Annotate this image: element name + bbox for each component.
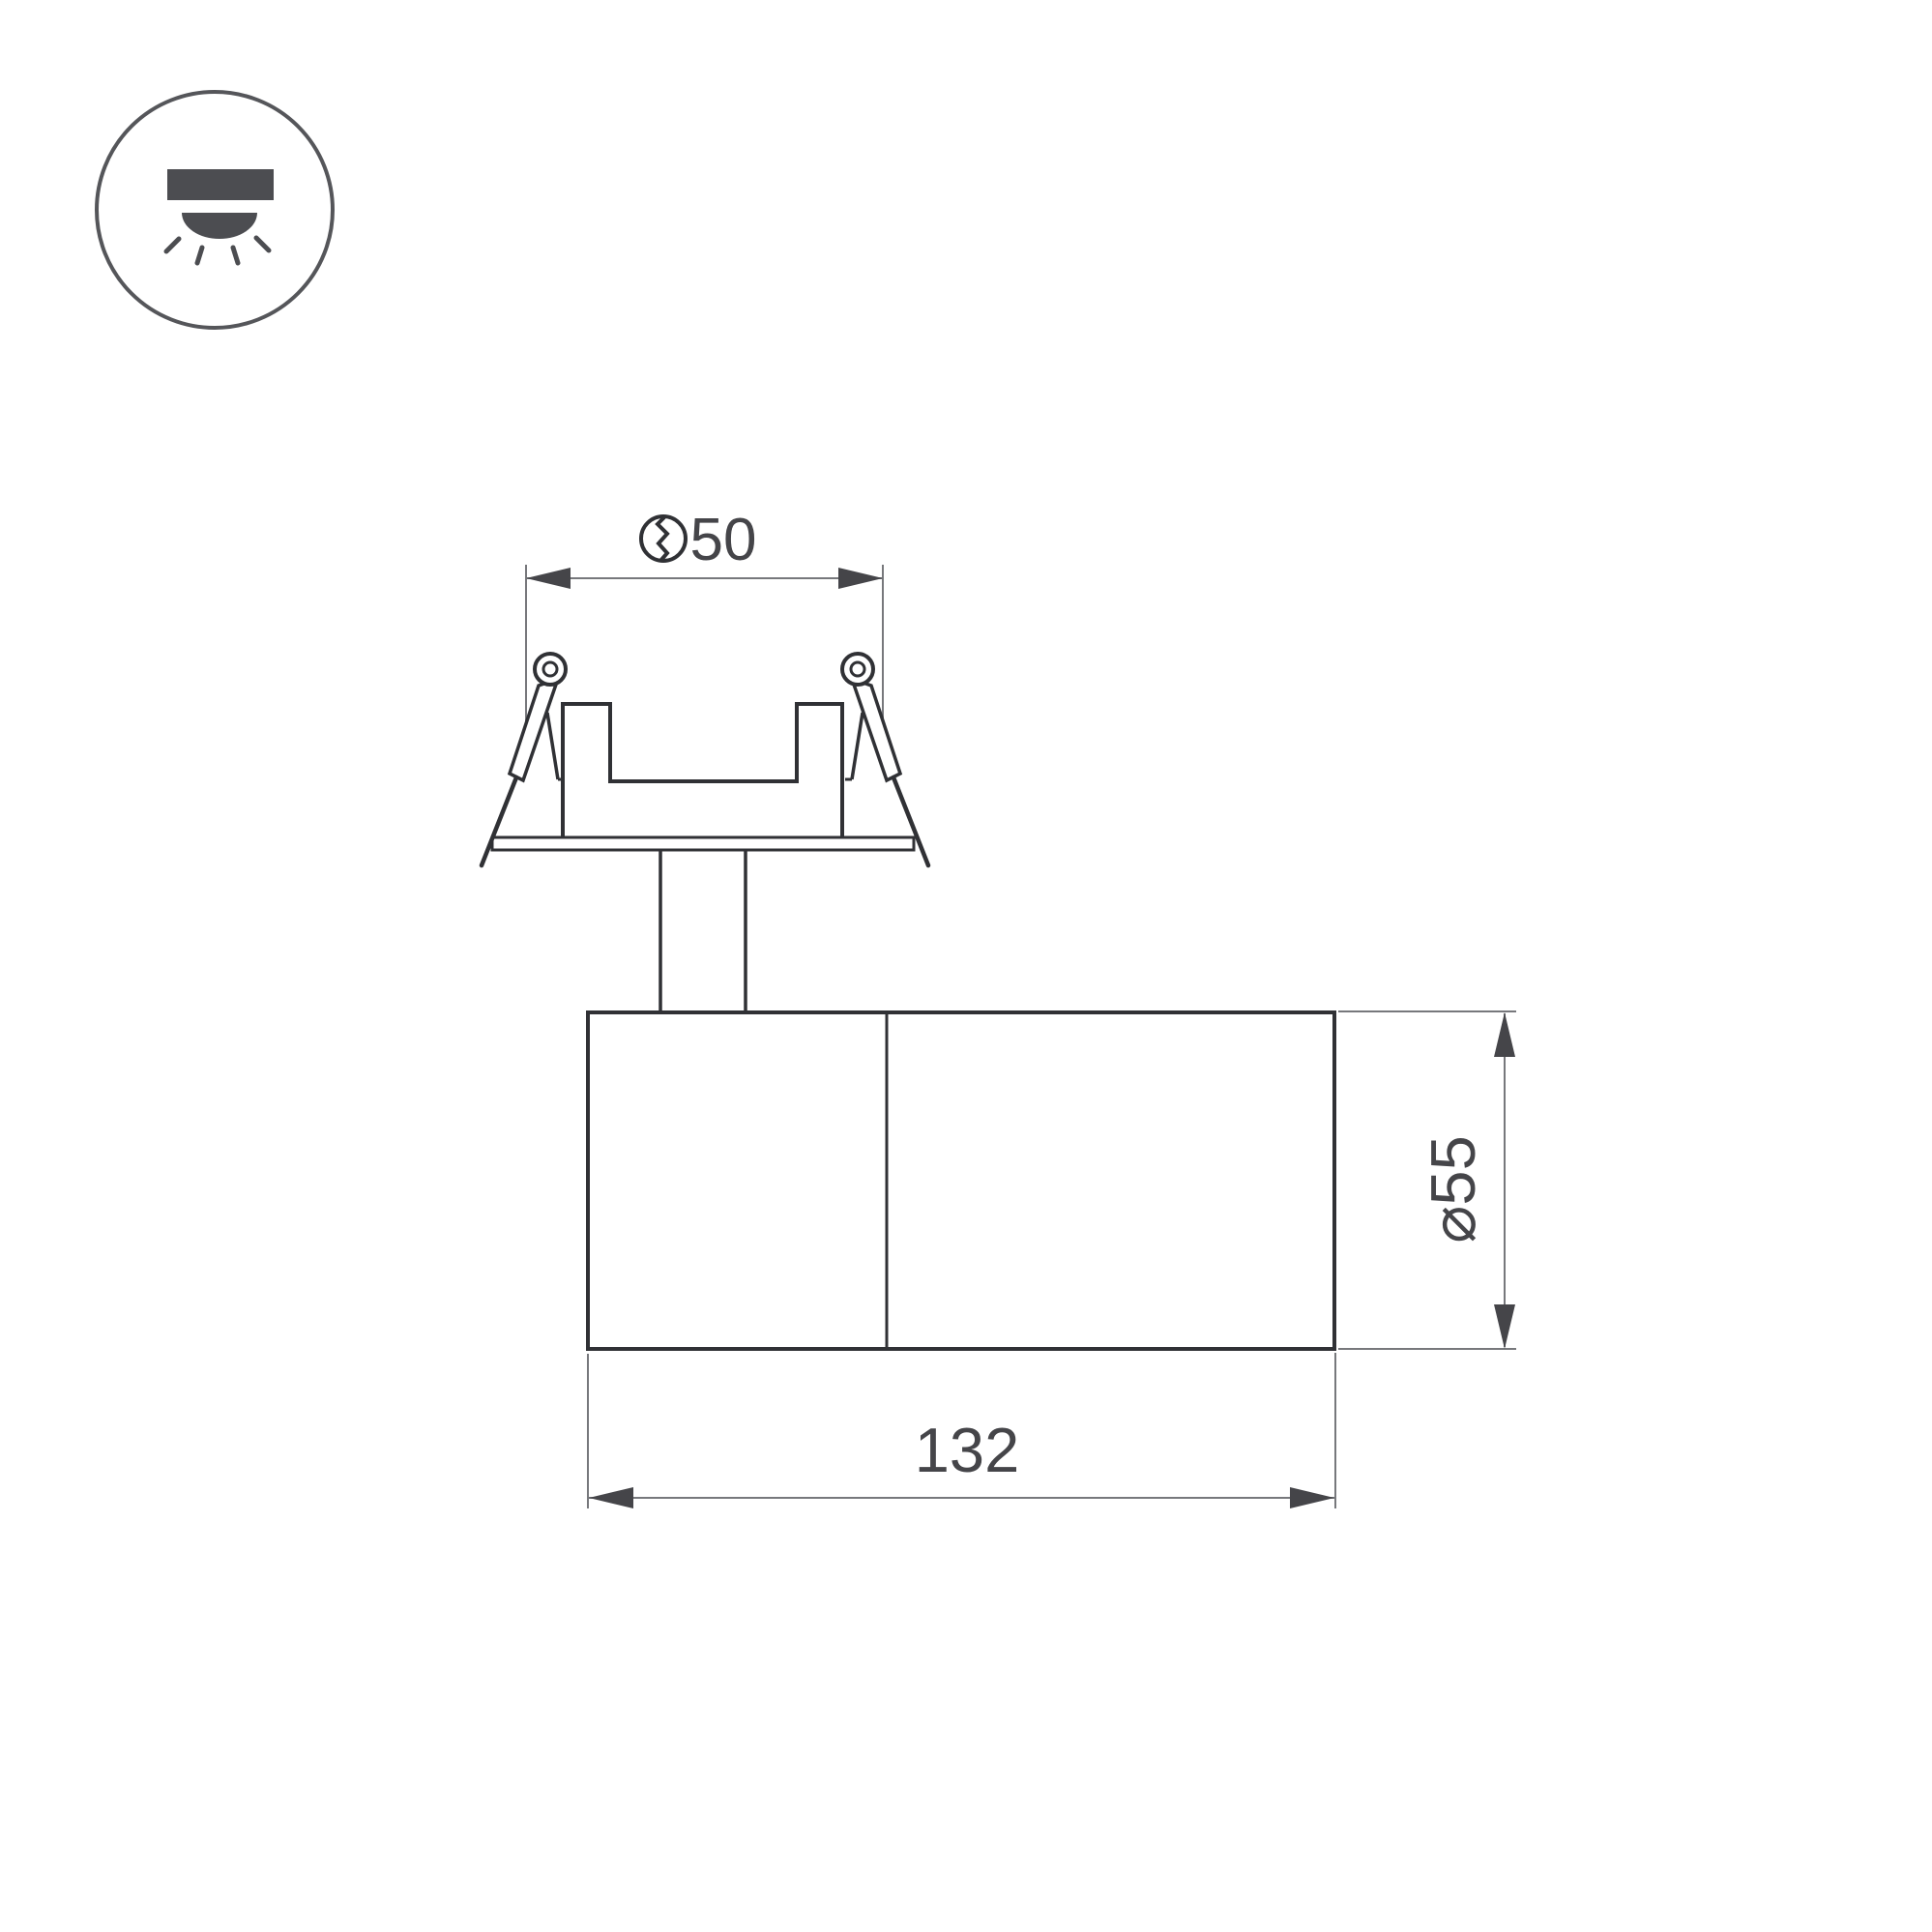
icon-light-dome [182,213,257,239]
icon-light-ray [256,238,269,250]
mounting-housing-profile [563,704,842,837]
spring-clip-left [482,654,566,865]
arrowhead-left [526,568,571,589]
hole-saw-cut-icon [641,516,686,561]
arrowhead-right [1290,1487,1334,1508]
length-value-label: 132 [915,1415,1019,1485]
icon-light-ray [233,248,238,263]
icon-lamp-can [167,169,274,200]
clip-inner-leg [852,713,863,779]
arrowhead-left [589,1487,633,1508]
length-dimension: 132 [588,1353,1335,1508]
recessed-downlight-icon [97,92,333,328]
clip-wire [893,777,928,865]
icon-border-circle [97,92,333,328]
clip-wire [482,777,516,865]
drawing-canvas: 50 [0,0,1932,1932]
icon-light-ray [166,239,179,251]
spotlight-fixture [482,654,1334,1349]
clip-inner-leg [547,713,558,779]
saw-cut-zigzag [658,517,667,561]
cutout-dimension: 50 [526,507,883,728]
clip-pivot [535,654,566,685]
arrowhead-right [838,568,883,589]
cutout-value-label: 50 [690,507,757,573]
arrowhead-bottom [1494,1304,1515,1349]
icon-light-ray [197,248,202,263]
mounting-flange [492,837,914,850]
spring-clip-right [842,654,928,865]
diameter-value-label: ⌀55 [1418,1135,1488,1243]
clip-pivot [842,654,873,685]
technical-drawing-page: 50 [0,0,1932,1932]
lamp-body [588,1012,1334,1349]
arrowhead-top [1494,1012,1515,1057]
diameter-dimension: ⌀55 [1338,1011,1516,1349]
